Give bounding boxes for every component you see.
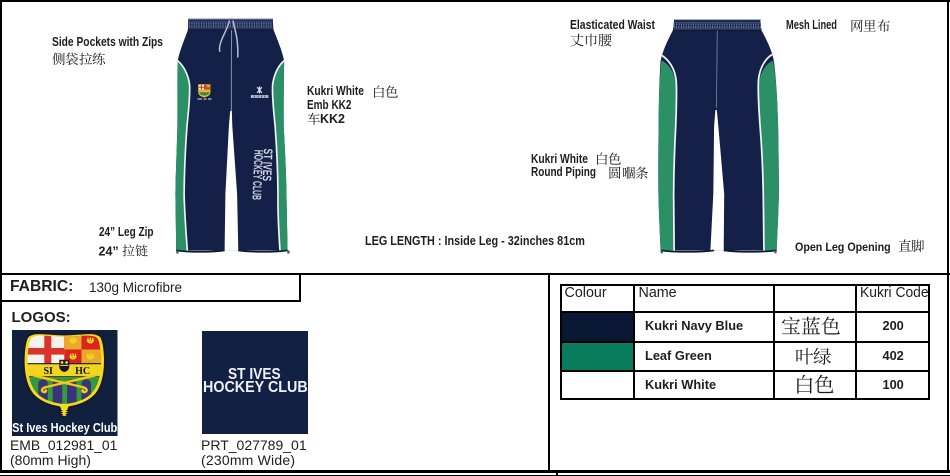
svg-text:HC: HC [75, 366, 90, 377]
svg-text:SI: SI [43, 366, 53, 377]
svg-text:St Ives Hockey Club: St Ives Hockey Club [12, 420, 117, 435]
svg-text:HOCKEY CLUB: HOCKEY CLUB [249, 149, 265, 200]
